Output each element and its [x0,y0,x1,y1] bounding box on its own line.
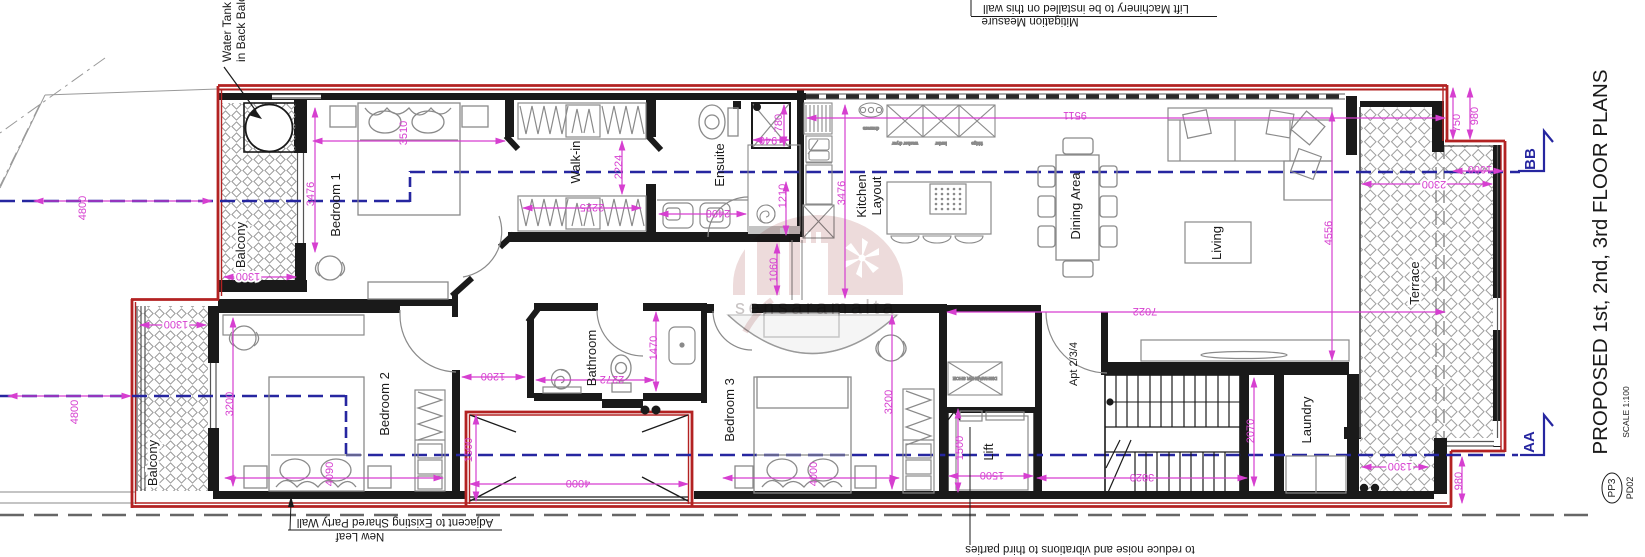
svg-text:fridge: fridge [971,141,983,146]
svg-text:3510: 3510 [398,121,410,145]
svg-text:2070: 2070 [1245,419,1257,443]
svg-text:Bedroom 2: Bedroom 2 [377,372,392,436]
svg-text:4000: 4000 [808,462,820,486]
svg-text:Balcony: Balcony [145,439,160,486]
svg-text:750: 750 [1451,114,1463,132]
svg-text:3476: 3476 [836,181,848,205]
svg-text:PD02: PD02 [1625,477,1635,500]
svg-text:PP3: PP3 [1607,478,1618,497]
svg-text:1210: 1210 [777,184,789,208]
svg-text:940: 940 [759,134,777,146]
svg-text:AA: AA [1521,431,1538,453]
svg-text:1000: 1000 [1468,163,1492,175]
svg-text:Bedroom 3: Bedroom 3 [722,378,737,442]
svg-text:Bathroom: Bathroom [584,330,599,386]
svg-text:1500: 1500 [980,469,1004,481]
svg-text:2224: 2224 [613,155,625,179]
svg-text:Ensuite: Ensuite [712,143,727,186]
svg-text:Kitchen: Kitchen [854,174,869,217]
svg-text:Lift: Lift [981,443,996,461]
svg-text:9511: 9511 [1063,109,1087,121]
svg-text:2300: 2300 [1422,178,1446,190]
svg-text:4090: 4090 [324,462,336,486]
svg-text:larder: larder [935,141,947,146]
svg-text:Dining Area: Dining Area [1068,172,1083,240]
svg-text:1060: 1060 [768,258,780,282]
svg-text:980: 980 [1453,472,1465,490]
svg-text:Adjacent to Existing Shared Pa: Adjacent to Existing Shared Party Wall [297,516,493,528]
svg-text:washer dryer: washer dryer [891,141,918,146]
svg-text:4800: 4800 [69,400,81,424]
svg-text:in Back Balcony: in Back Balcony [234,0,248,62]
svg-text:Layout: Layout [869,176,884,215]
svg-text:to reduce noise and vibrations: to reduce noise and vibrations to third … [965,543,1195,555]
svg-text:3200: 3200 [224,392,236,416]
svg-text:sensaramalta: sensaramalta [735,297,897,319]
svg-text:Laundry: Laundry [1299,396,1314,443]
svg-text:Bedroom 1: Bedroom 1 [328,173,343,237]
svg-text:3476: 3476 [305,182,317,206]
svg-text:Apt 2/3/4: Apt 2/3/4 [1068,342,1080,386]
svg-text:780: 780 [773,114,785,132]
svg-text:PROPOSED 1st, 2nd, 3rd FLOOR P: PROPOSED 1st, 2nd, 3rd FLOOR PLANS [1589,69,1612,454]
svg-text:1500: 1500 [463,438,475,462]
svg-text:2272: 2272 [600,373,624,385]
svg-text:BB: BB [1522,148,1539,170]
svg-text:7022: 7022 [1133,305,1157,317]
svg-text:1300: 1300 [164,318,188,330]
svg-text:DISHWASHER SHOE: DISHWASHER SHOE [953,376,997,381]
svg-text:3200: 3200 [883,390,895,414]
svg-text:Terrace: Terrace [1407,261,1422,304]
svg-text:New Leaf: New Leaf [335,530,384,542]
svg-text:Water Tank: Water Tank [220,1,234,62]
svg-text:1300: 1300 [1388,460,1412,472]
svg-text:Lift Machinery to be installed: Lift Machinery to be installed on this w… [983,2,1189,14]
svg-text:Balcony: Balcony [233,221,248,268]
svg-text:3820: 3820 [1130,471,1154,483]
svg-text:4800: 4800 [77,196,89,220]
svg-text:2225: 2225 [580,201,604,213]
svg-text:1200: 1200 [481,370,505,382]
svg-text:Living: Living [1209,226,1224,260]
svg-text:4000: 4000 [566,477,590,489]
svg-text:980: 980 [1469,107,1481,125]
svg-text:1300: 1300 [236,270,260,282]
svg-text:drawers: drawers [862,126,879,131]
svg-text:Walk-in: Walk-in [568,141,583,184]
svg-text:4556: 4556 [1323,221,1335,245]
svg-text:1470: 1470 [648,336,660,360]
svg-text:1500: 1500 [954,436,966,460]
svg-text:SCALE 1:100: SCALE 1:100 [1621,386,1631,438]
svg-text:2400: 2400 [706,207,730,219]
